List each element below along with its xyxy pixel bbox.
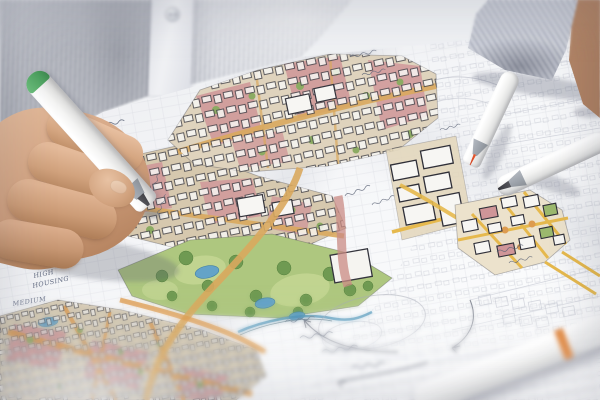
- depth-of-field-top: [0, 0, 600, 62]
- depth-of-field-bottom: [0, 285, 600, 400]
- photo-urban-planning-scene: HIGH HOUSING MEDIUM: [0, 0, 600, 400]
